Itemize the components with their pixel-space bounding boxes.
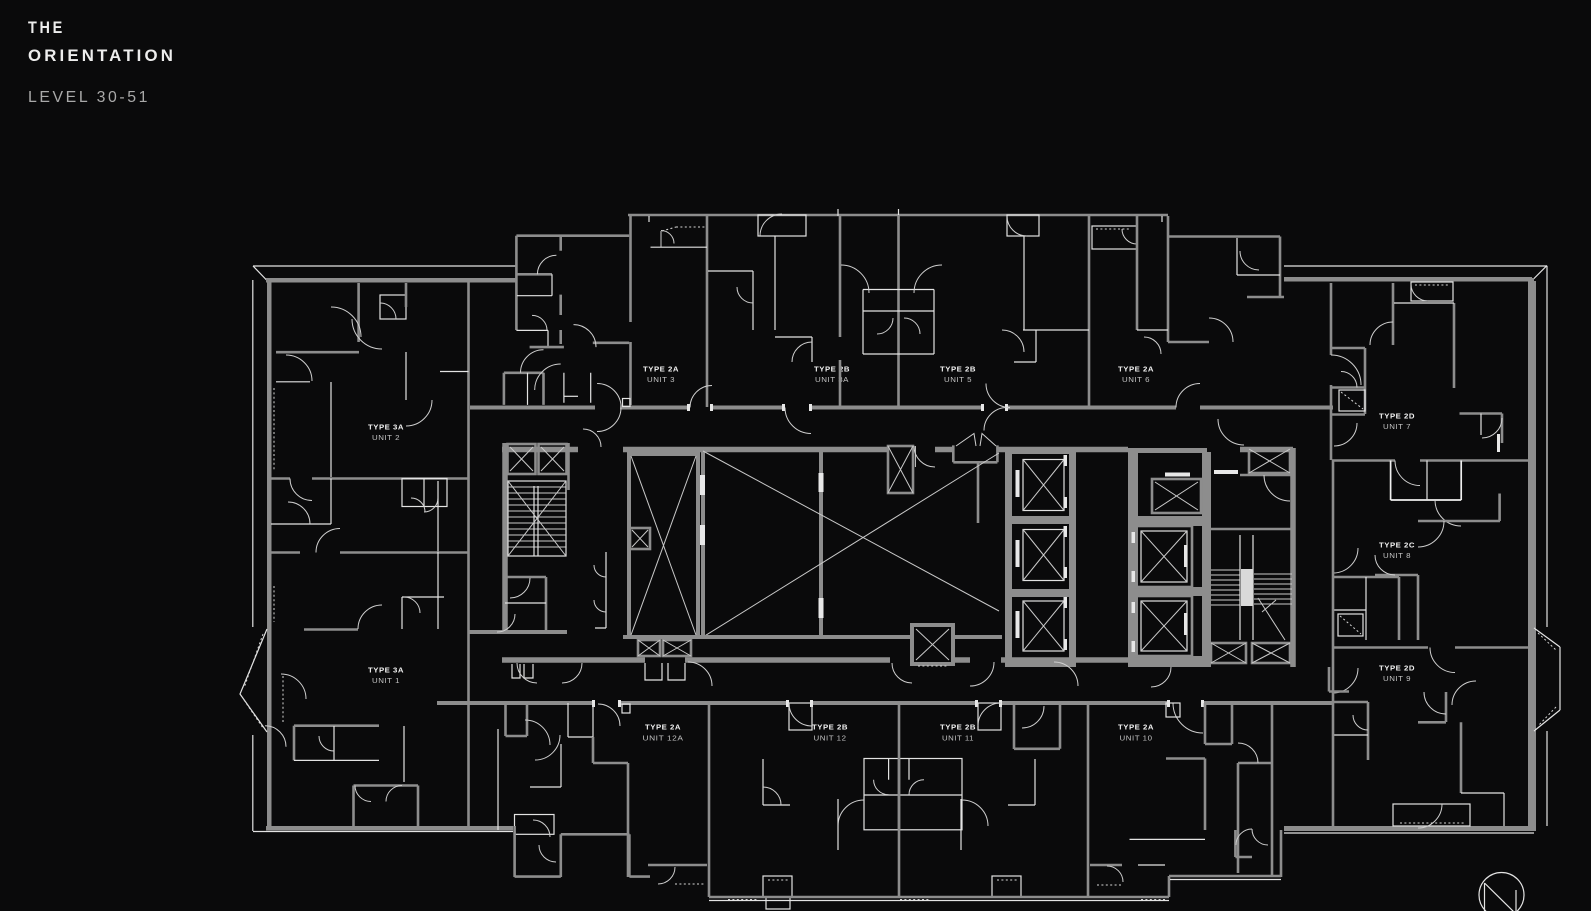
svg-text:TYPE 2B: TYPE 2B [814, 365, 850, 374]
svg-text:UNIT 11: UNIT 11 [942, 734, 974, 743]
svg-text:UNIT 9: UNIT 9 [1383, 674, 1411, 683]
svg-text:THE: THE [28, 18, 65, 37]
svg-text:TYPE 2B: TYPE 2B [812, 723, 848, 732]
svg-text:TYPE 2B: TYPE 2B [940, 365, 976, 374]
svg-text:TYPE 2A: TYPE 2A [645, 723, 681, 732]
svg-text:UNIT 7: UNIT 7 [1383, 422, 1411, 431]
svg-text:TYPE 2A: TYPE 2A [1118, 365, 1154, 374]
svg-text:TYPE 3A: TYPE 3A [368, 666, 404, 675]
svg-text:TYPE 2D: TYPE 2D [1379, 664, 1415, 673]
svg-text:UNIT 8: UNIT 8 [1383, 551, 1411, 560]
svg-text:TYPE 2D: TYPE 2D [1379, 412, 1415, 421]
svg-text:ORIENTATION: ORIENTATION [28, 46, 176, 65]
svg-text:UNIT 2: UNIT 2 [372, 433, 400, 442]
svg-text:UNIT 10: UNIT 10 [1120, 734, 1153, 743]
svg-text:TYPE 2A: TYPE 2A [643, 365, 679, 374]
svg-text:TYPE 2A: TYPE 2A [1118, 723, 1154, 732]
svg-text:LEVEL 30-51: LEVEL 30-51 [28, 89, 150, 106]
svg-text:TYPE 2B: TYPE 2B [940, 723, 976, 732]
svg-text:UNIT 6: UNIT 6 [1122, 375, 1150, 384]
svg-text:TYPE 2C: TYPE 2C [1379, 541, 1415, 550]
svg-text:UNIT 12A: UNIT 12A [643, 734, 684, 743]
svg-text:UNIT 5: UNIT 5 [944, 375, 972, 384]
svg-text:UNIT 1: UNIT 1 [372, 676, 400, 685]
svg-text:TYPE 3A: TYPE 3A [368, 423, 404, 432]
svg-text:UNIT 3A: UNIT 3A [815, 375, 849, 384]
svg-text:UNIT 3: UNIT 3 [647, 375, 675, 384]
svg-text:UNIT 12: UNIT 12 [814, 734, 847, 743]
